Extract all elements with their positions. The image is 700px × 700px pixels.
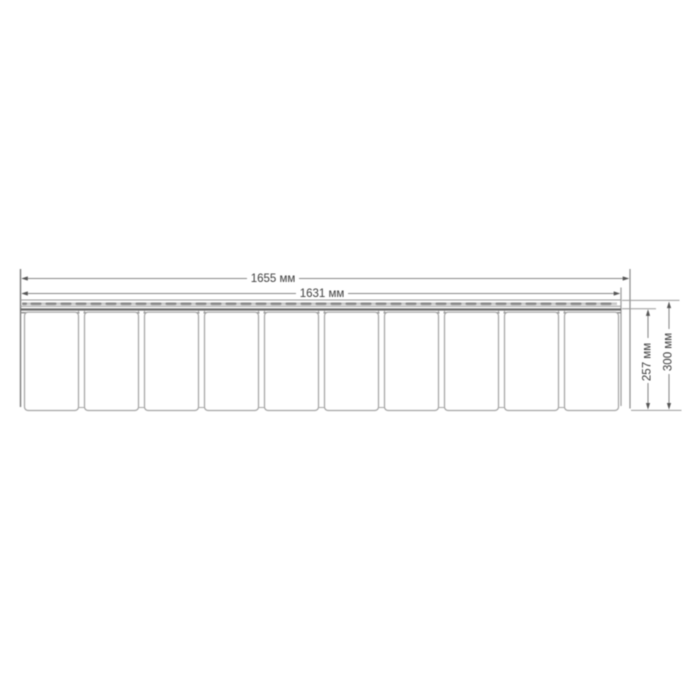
svg-text:1631 мм: 1631 мм bbox=[300, 288, 345, 300]
svg-text:1655 мм: 1655 мм bbox=[251, 273, 296, 285]
svg-text:257 мм: 257 мм bbox=[642, 343, 654, 381]
svg-text:300 мм: 300 мм bbox=[663, 333, 675, 371]
